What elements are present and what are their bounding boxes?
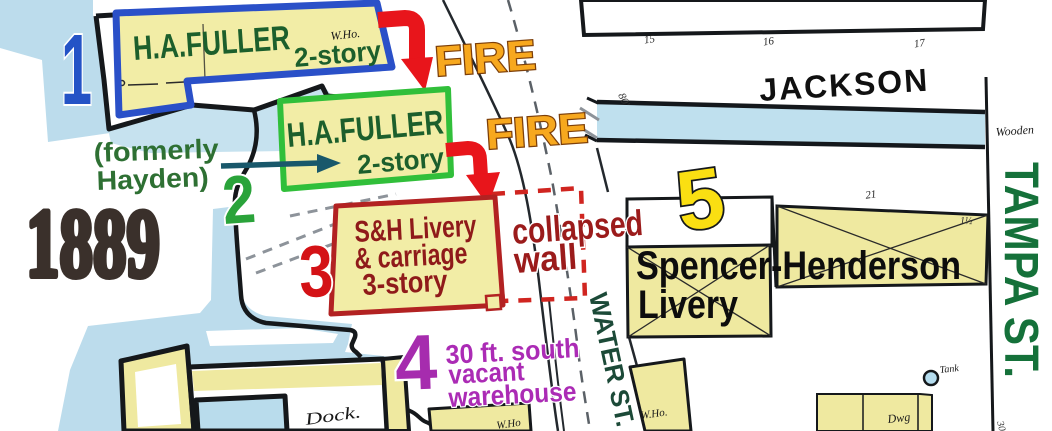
svg-text:17: 17 [913, 37, 926, 50]
svg-text:3: 3 [298, 231, 335, 313]
svg-text:JACKSON: JACKSON [758, 62, 930, 108]
svg-text:1889: 1889 [26, 190, 160, 297]
svg-text:21: 21 [865, 188, 878, 201]
svg-text:FIRE: FIRE [433, 31, 537, 85]
svg-text:FIRE: FIRE [484, 104, 589, 158]
svg-text:2: 2 [220, 161, 258, 239]
svg-text:Tank: Tank [939, 363, 960, 376]
svg-text:W.Ho: W.Ho [496, 417, 522, 431]
svg-text:305: 305 [994, 419, 1009, 431]
svg-text:16: 16 [762, 35, 775, 48]
svg-text:Dwg: Dwg [886, 410, 911, 426]
svg-text:warehouse: warehouse [447, 376, 577, 413]
svg-text:3-story: 3-story [362, 265, 449, 302]
svg-text:Spencer-Henderson: Spencer-Henderson [636, 244, 961, 288]
svg-text:Livery: Livery [638, 283, 739, 327]
svg-text:1½: 1½ [960, 216, 973, 227]
svg-text:wall: wall [512, 236, 579, 281]
svg-text:15: 15 [643, 33, 656, 46]
svg-text:4: 4 [394, 318, 439, 407]
svg-text:1: 1 [61, 14, 92, 126]
svg-text:TAMPA ST.: TAMPA ST. [994, 162, 1047, 378]
svg-text:Wooden: Wooden [995, 122, 1034, 139]
